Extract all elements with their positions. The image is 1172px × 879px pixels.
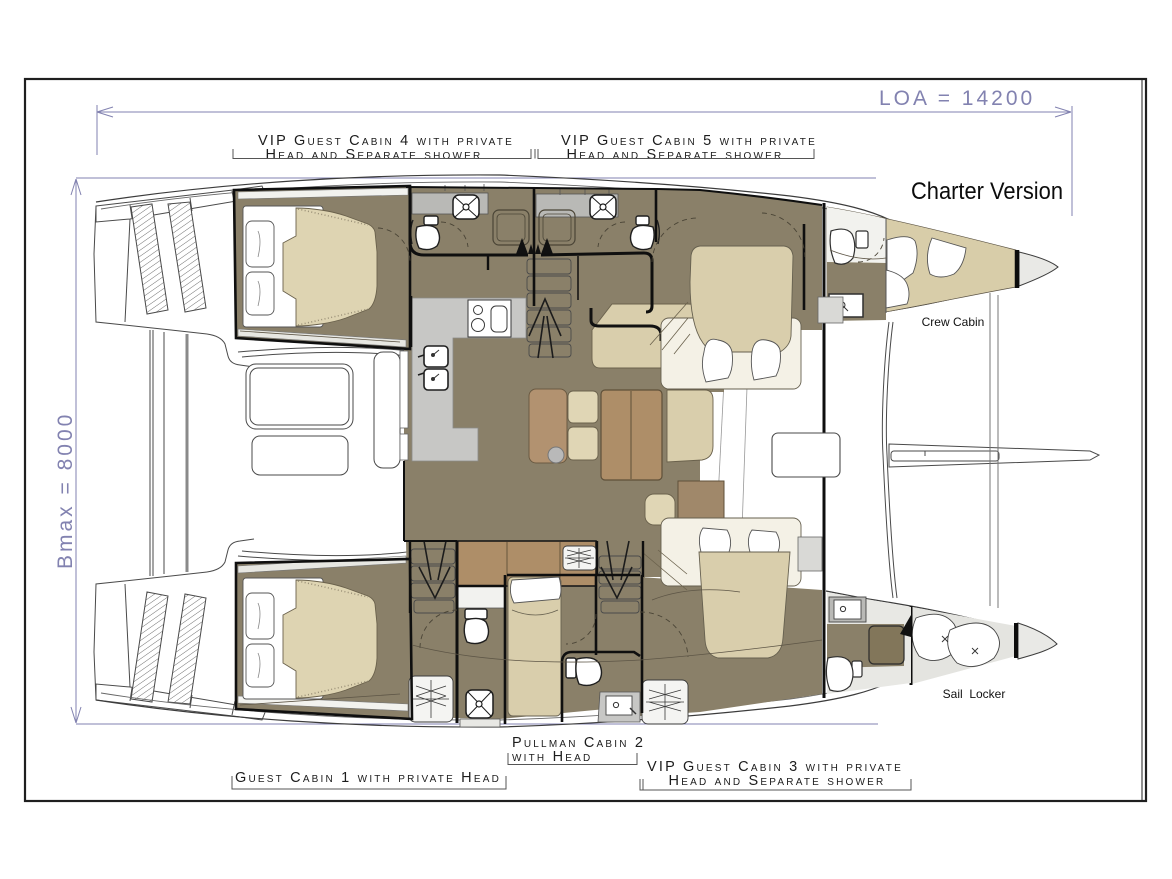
svg-text:Bmax = 8000: Bmax = 8000 [54,412,77,569]
svg-text:Sail Locker: Sail Locker [943,687,1006,701]
svg-text:Head and Separate shower: Head and Separate shower [266,147,483,163]
svg-text:Head and Separate shower: Head and Separate shower [567,147,784,163]
svg-text:Crew Cabin: Crew Cabin [922,315,985,329]
svg-text:LOA = 14200: LOA = 14200 [879,87,1035,110]
svg-text:Charter Version: Charter Version [911,178,1063,205]
svg-text:Guest Cabin 1 with private Hea: Guest Cabin 1 with private Head [235,770,501,786]
svg-text:with Head: with Head [512,749,592,765]
svg-text:Head and Separate shower: Head and Separate shower [669,773,886,789]
